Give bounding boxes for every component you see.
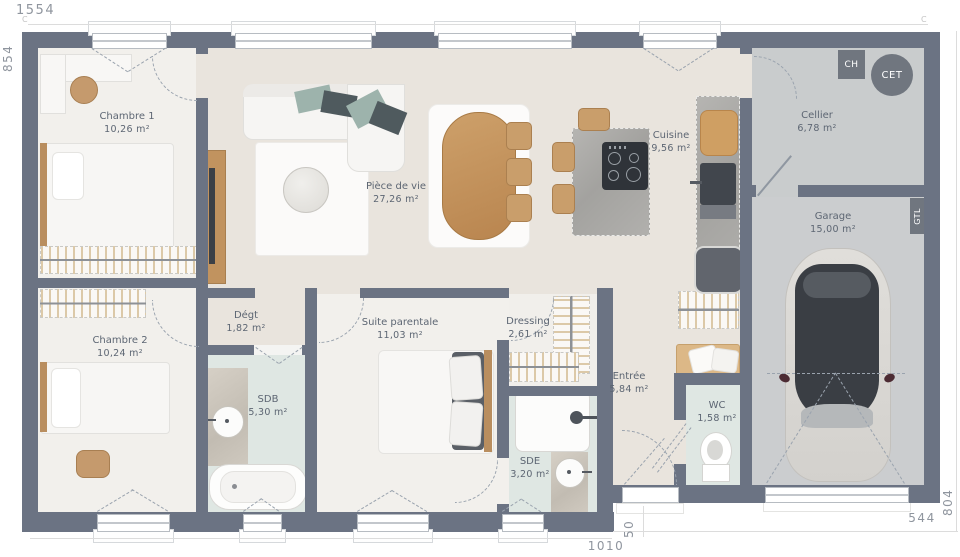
cutting-board xyxy=(700,110,738,156)
wall-step xyxy=(597,485,613,532)
desk-return xyxy=(40,54,66,114)
wardrobe-chambre1 xyxy=(40,246,198,274)
badge-cet-label: CET xyxy=(882,70,903,81)
car-rear-window xyxy=(803,272,871,298)
sink-drain xyxy=(225,419,229,423)
wall-suite-top xyxy=(360,288,497,298)
toilet-tank xyxy=(702,464,730,482)
wall-exterior-right xyxy=(924,32,940,503)
burner xyxy=(608,170,619,181)
badge-cet: CET xyxy=(871,54,913,96)
chair xyxy=(70,76,98,104)
stool xyxy=(552,184,575,214)
dim-bottom-right: 544 xyxy=(898,511,946,525)
wall-cellier-garage-left xyxy=(740,48,752,485)
cooktop xyxy=(602,142,648,190)
wall-exterior-left xyxy=(22,32,38,532)
porch-garage xyxy=(763,502,911,512)
tv xyxy=(209,168,215,264)
garage-door xyxy=(765,487,909,503)
badge-gtl: GTL xyxy=(910,198,924,234)
stool xyxy=(552,142,575,172)
fridge xyxy=(694,246,744,294)
toilet-seat xyxy=(707,440,723,460)
dim-corner-mark-right: C xyxy=(921,15,927,24)
burner xyxy=(608,152,621,165)
bed-headboard xyxy=(484,350,492,452)
shower-head xyxy=(570,411,583,424)
dim-corner-mark-left: C xyxy=(22,15,28,24)
cushion xyxy=(711,347,740,373)
floor-plan: CH CET GTL Chambre 1 10,26 m² Chambre 2 … xyxy=(0,0,960,557)
stool xyxy=(578,108,610,131)
wardrobe-chambre2 xyxy=(40,289,146,318)
badge-gtl-label: GTL xyxy=(913,208,922,225)
bed-headboard xyxy=(40,362,47,432)
window-sdb xyxy=(243,514,282,532)
wall-dressing-sde-divider xyxy=(509,386,597,396)
door-opening-sde xyxy=(497,458,509,504)
dim-step: 50 xyxy=(622,508,636,538)
wall-degt-top xyxy=(198,288,255,298)
dim-line-right xyxy=(956,31,957,532)
window-living-1 xyxy=(235,33,372,49)
wall-chambre-divider xyxy=(38,278,198,288)
dim-bottom: 1010 xyxy=(578,539,634,553)
wall-suite-left xyxy=(305,288,317,512)
faucet xyxy=(582,471,592,473)
badge-ch: CH xyxy=(838,50,865,79)
window-cuisine xyxy=(643,33,717,49)
closet-dressing-bottom xyxy=(509,352,579,382)
window-chambre2 xyxy=(97,514,170,532)
pillow xyxy=(449,401,484,447)
window-living-2 xyxy=(438,33,572,49)
chair xyxy=(76,450,110,478)
closet-entree xyxy=(678,291,739,329)
dim-line-bottom-right xyxy=(613,531,958,532)
door-opening-dressing xyxy=(497,298,509,340)
burner xyxy=(626,167,641,182)
counter-cabinet xyxy=(700,205,736,219)
bathtub-drain xyxy=(232,484,237,489)
front-door-opening xyxy=(622,487,679,503)
dining-chair xyxy=(506,158,532,186)
pillow xyxy=(449,355,484,401)
cooktop-dots xyxy=(609,146,629,149)
garage-door-swing xyxy=(767,373,905,374)
dim-line-top xyxy=(28,24,928,25)
sink-drain xyxy=(567,470,571,474)
dim-right: 804 xyxy=(941,476,955,516)
door-opening-chambre1 xyxy=(196,54,208,98)
window-chambre1 xyxy=(92,33,167,49)
dining-chair xyxy=(506,194,532,222)
window-suite xyxy=(357,514,429,532)
burner xyxy=(629,153,639,163)
badge-ch-label: CH xyxy=(844,60,858,70)
kitchen-sink xyxy=(700,163,736,205)
dim-left: 854 xyxy=(1,22,15,72)
faucet xyxy=(690,181,702,184)
dining-table xyxy=(442,112,516,240)
wall-sde-right xyxy=(597,288,613,485)
dim-line-bottom-left xyxy=(30,538,612,539)
dim-line-step xyxy=(643,506,644,537)
dining-chair xyxy=(506,122,532,150)
bed-headboard xyxy=(40,143,47,263)
pillow xyxy=(51,368,81,428)
pillow xyxy=(52,152,84,200)
window-sde xyxy=(502,514,544,532)
coffee-table xyxy=(283,167,329,213)
door-opening-cellier xyxy=(740,54,752,98)
